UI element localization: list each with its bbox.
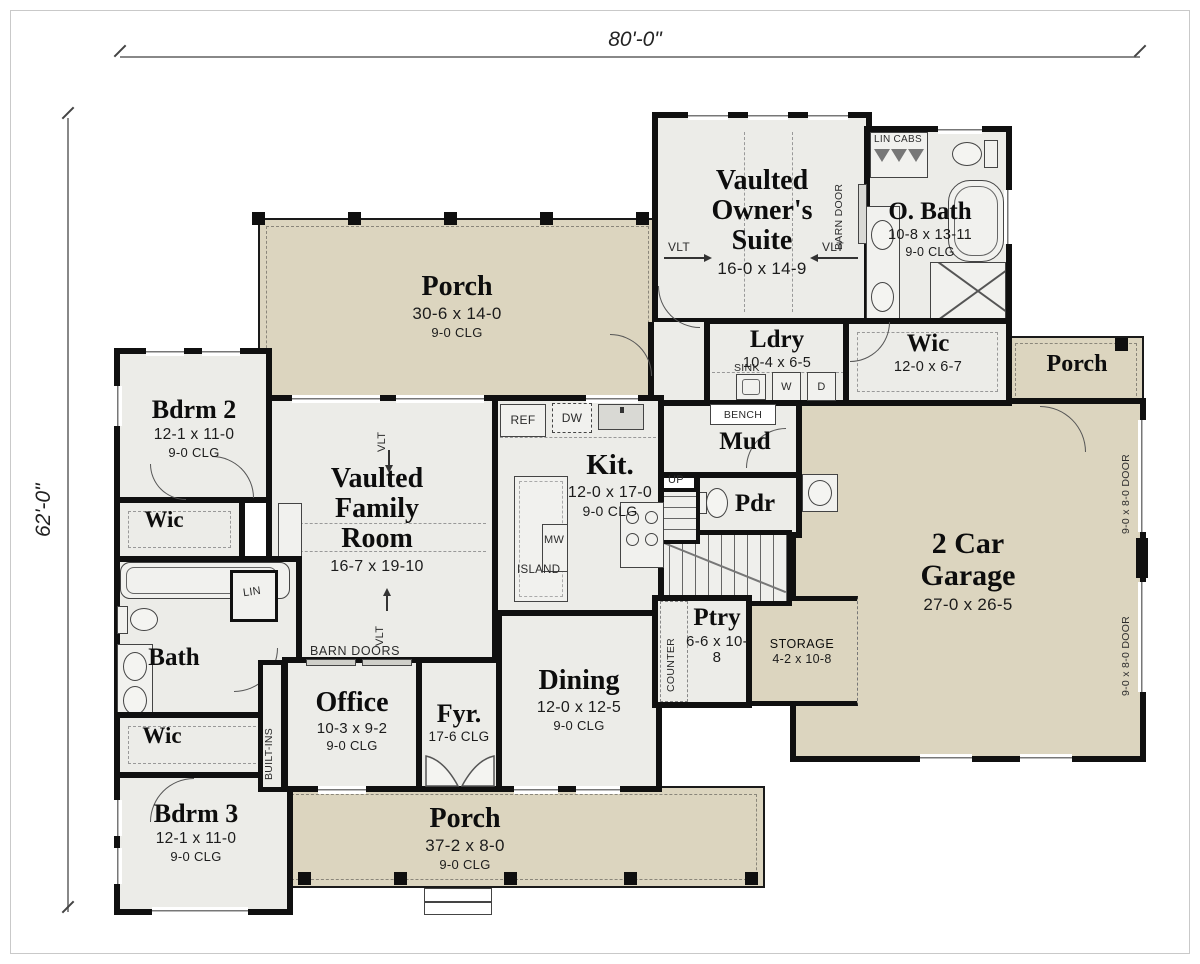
room-name: O. Bath (884, 198, 976, 225)
vanity-sink (871, 282, 894, 312)
powder-label: Pdr (722, 490, 788, 517)
barn-doors-label: BARN DOORS (310, 644, 400, 658)
dining-window (576, 786, 620, 794)
vlt-arrow-shaft (388, 450, 390, 466)
porch-post (348, 212, 361, 225)
wall-segment (1136, 538, 1148, 578)
room-name: Porch (1022, 352, 1132, 378)
lin-cabs-label: LIN CABS (874, 134, 922, 145)
room-dims: 37-2 x 8-0 (385, 837, 545, 855)
room-dims: 10-4 x 6-5 (724, 356, 830, 372)
bdrm2-window (146, 348, 184, 356)
room-name: Wic (128, 508, 200, 533)
bath-window (938, 126, 982, 134)
bdrm3-window (152, 907, 248, 915)
vlt-arrow-shaft (386, 595, 388, 611)
faucet (620, 407, 624, 413)
lin-label: LIN (242, 585, 262, 599)
vlt-arrow-head (385, 465, 393, 473)
dryer-label: D (817, 381, 825, 393)
washer: W (772, 372, 801, 401)
bdrm2-window (114, 386, 122, 426)
bedroom2-wic-label: Wic (128, 508, 200, 533)
mud-label: Mud (698, 428, 792, 455)
pantry-label: Ptry 6-6 x 10-8 (686, 604, 748, 666)
shower-line (933, 262, 1006, 320)
laundry-sink (736, 374, 766, 400)
room-dims: 12-0 x 17-0 (566, 484, 654, 501)
room-name: 2 Car Garage (888, 528, 1048, 593)
room-name: Ptry (686, 604, 748, 631)
dining-window (514, 786, 558, 794)
room-dims: 10-3 x 9-2 (292, 721, 412, 737)
entry-hall (648, 322, 712, 406)
ref-label: REF (511, 413, 536, 427)
floor-plan: 80'-0" 62'-0" LIN CABS (0, 0, 1200, 964)
room-clg: 9-0 CLG (134, 446, 254, 460)
room-dims: 4-2 x 10-8 (754, 653, 850, 667)
bdrm3-window (114, 800, 122, 836)
bath-window (1004, 190, 1012, 244)
shower-line (933, 262, 1006, 320)
room-dims: 16-0 x 14-9 (692, 260, 832, 278)
toilet-2 (130, 608, 158, 631)
bedroom2-label: Bdrm 2 12-1 x 11-0 9-0 CLG (134, 396, 254, 460)
vlt-label: VLT (822, 240, 844, 254)
room-name: Porch (385, 804, 545, 834)
room-name: Wic (126, 724, 198, 749)
suite-window (808, 112, 848, 120)
office-label: Office 10-3 x 9-2 9-0 CLG (292, 688, 412, 753)
foyer-label: Fyr. 17-6 CLG (422, 700, 496, 745)
garage-window (1020, 754, 1072, 762)
vlt-arrow-shaft (816, 257, 858, 259)
porch-post (444, 212, 457, 225)
porch-post (1115, 338, 1128, 351)
garage-door-opening (1138, 582, 1146, 692)
storage-label: STORAGE 4-2 x 10-8 (754, 638, 850, 666)
room-name: STORAGE (754, 638, 850, 652)
porch-post (624, 872, 637, 885)
room-clg: 9-0 CLG (385, 858, 545, 872)
burner (626, 533, 639, 546)
room-dims: 12-1 x 11-0 (134, 427, 254, 444)
toilet (952, 142, 982, 166)
porch-post (298, 872, 311, 885)
garage-label: 2 Car Garage 27-0 x 26-5 (888, 528, 1048, 614)
kitchen-label: Kit. 12-0 x 17-0 9-0 CLG (566, 450, 654, 519)
bathroom2-label: Bath (130, 644, 218, 671)
room-dims: 12-0 x 12-5 (506, 699, 652, 716)
kitchen-sink (598, 404, 644, 430)
room-dims: 16-7 x 19-10 (296, 558, 458, 575)
room-name: Mud (698, 428, 792, 455)
counter-dash (500, 437, 656, 438)
up-label: UP (668, 474, 684, 486)
top-dimension-line (120, 56, 1140, 58)
room-clg: 9-0 CLG (377, 326, 537, 340)
room-dims: 27-0 x 26-5 (888, 596, 1048, 614)
bench: BENCH (710, 404, 776, 425)
garage-window (920, 754, 972, 762)
porch-step (424, 902, 492, 915)
linen-cabinets: LIN CABS (870, 132, 928, 178)
barn-door-slab (306, 659, 356, 666)
front-double-door (424, 750, 496, 788)
room-dims: 12-0 x 6-7 (876, 360, 980, 376)
room-clg: 9-0 CLG (506, 719, 652, 733)
toilet-tank (984, 140, 998, 168)
vlt-arrow-head (810, 254, 818, 262)
office-window (318, 786, 366, 794)
suite-window (688, 112, 728, 120)
bedroom3-wic-label: Wic (126, 724, 198, 749)
room-clg: 9-0 CLG (134, 850, 258, 864)
washer-label: W (781, 381, 792, 393)
vlt-arrow-head (704, 254, 712, 262)
left-dimension-line (67, 118, 69, 912)
room-name: Wic (876, 330, 980, 357)
room-dims: 10-8 x 13-11 (884, 228, 976, 244)
bdrm3-window (114, 848, 122, 884)
family-opening (396, 395, 484, 403)
vlt-label: VLT (376, 418, 391, 452)
family-opening (292, 395, 380, 403)
kitchen-window (586, 395, 638, 403)
garage-door-label: 9-0 x 8-0 DOOR (1120, 418, 1136, 534)
vlt-label: VLT (668, 240, 690, 254)
room-clg: 9-0 CLG (292, 739, 412, 753)
garage-door-label: 9-0 x 8-0 DOOR (1120, 580, 1136, 696)
porch-post (394, 872, 407, 885)
porch-post (252, 212, 265, 225)
counter-label: COUNTER (665, 612, 682, 692)
room-name: Vaulted Family Room (296, 464, 458, 555)
porch-post (745, 872, 758, 885)
room-name: Porch (377, 272, 537, 302)
room-name: Dining (506, 666, 652, 696)
room-clg: 9-0 CLG (884, 246, 976, 260)
room-name: Bdrm 2 (134, 396, 254, 424)
utility-sink (802, 474, 838, 512)
dishwasher: DW (552, 403, 592, 433)
toilet-tank-2 (117, 606, 128, 634)
room-name: Bath (130, 644, 218, 671)
room-name: Pdr (722, 490, 788, 517)
dryer: D (807, 372, 836, 401)
garage-door-opening (1138, 420, 1146, 532)
bdrm2-window (202, 348, 240, 356)
vlt-label: VLT (374, 612, 389, 646)
room-dims: 12-1 x 11-0 (134, 831, 258, 848)
room-clg: 9-0 CLG (566, 504, 654, 519)
width-dimension-label: 80'-0" (555, 28, 715, 52)
barn-door-slab (362, 659, 412, 666)
room-name: Ldry (724, 326, 830, 353)
room-dims: 6-6 x 10-8 (686, 634, 748, 666)
porch-step (424, 888, 492, 902)
room-name: Vaulted Owner's Suite (692, 166, 832, 257)
room-name: Bdrm 3 (134, 800, 258, 828)
mw-label: MW (544, 534, 564, 546)
laundry-label: Ldry 10-4 x 6-5 (724, 326, 830, 372)
utility-sink-basin (808, 480, 832, 506)
bench-label: BENCH (724, 409, 762, 421)
suite-window (748, 112, 788, 120)
room-name: Office (292, 688, 412, 718)
dw-label: DW (562, 411, 583, 425)
shower (930, 262, 1006, 320)
owners-bath-label: O. Bath 10-8 x 13-11 9-0 CLG (884, 198, 976, 259)
room-name: Kit. (566, 450, 654, 481)
room-dims: 30-6 x 14-0 (377, 305, 537, 323)
porch-post (504, 872, 517, 885)
family-room-label: Vaulted Family Room 16-7 x 19-10 (296, 464, 458, 575)
porch-bottom-label: Porch 37-2 x 8-0 9-0 CLG (385, 804, 545, 872)
refrigerator: REF (500, 404, 546, 437)
room-clg: 17-6 CLG (422, 730, 496, 745)
height-dimension-label: 62'-0" (32, 455, 56, 565)
vanity-sink (123, 686, 147, 715)
room-name: Fyr. (422, 700, 496, 728)
porch-top-label: Porch 30-6 x 14-0 9-0 CLG (377, 272, 537, 340)
porch-post (540, 212, 553, 225)
bedroom3-label: Bdrm 3 12-1 x 11-0 9-0 CLG (134, 800, 258, 864)
vlt-arrow-shaft (664, 257, 706, 259)
cabinet-zigzag (874, 149, 924, 162)
dining-label: Dining 12-0 x 12-5 9-0 CLG (506, 666, 652, 733)
island-label: ISLAND (517, 564, 560, 576)
built-ins-label: BUILT-INS (263, 672, 281, 780)
owners-wic-label: Wic 12-0 x 6-7 (876, 330, 980, 376)
stair-diagonal (656, 539, 786, 593)
burner (645, 533, 658, 546)
sink-basin (742, 379, 760, 395)
porch-right-label: Porch (1022, 352, 1132, 378)
porch-post (636, 212, 649, 225)
